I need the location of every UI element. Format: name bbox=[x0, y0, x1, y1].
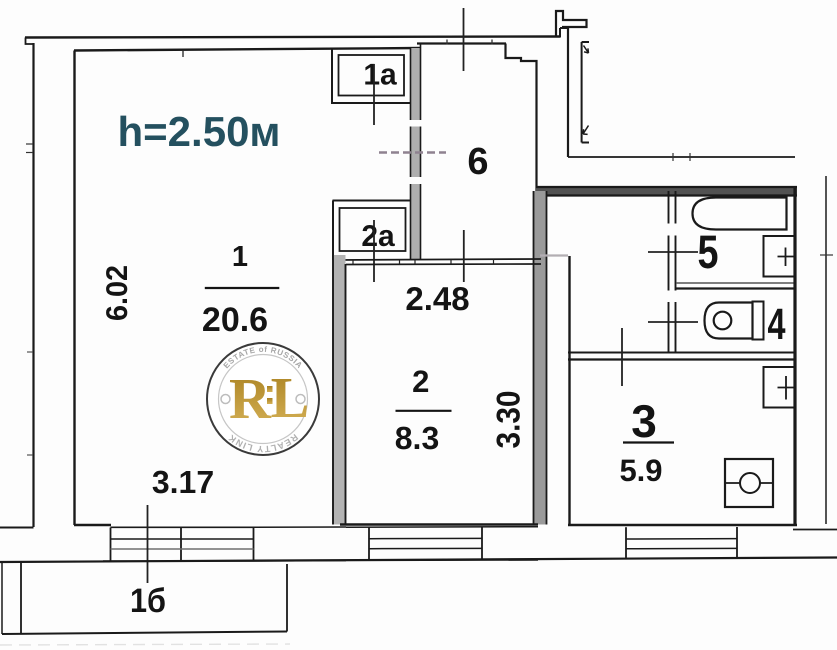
svg-text:1б: 1б bbox=[130, 582, 166, 620]
svg-text:3.17: 3.17 bbox=[152, 464, 214, 500]
svg-text:1a: 1a bbox=[363, 59, 397, 92]
svg-text:3.30: 3.30 bbox=[490, 391, 527, 449]
svg-text:R: R bbox=[229, 366, 272, 431]
svg-text:3: 3 bbox=[631, 395, 657, 447]
svg-text:2a: 2a bbox=[361, 220, 395, 253]
svg-text:2.48: 2.48 bbox=[405, 280, 469, 317]
svg-text:h=2.50м: h=2.50м bbox=[118, 108, 281, 155]
svg-text:8.3: 8.3 bbox=[395, 420, 439, 456]
svg-text:5: 5 bbox=[698, 225, 719, 278]
svg-text:2: 2 bbox=[412, 364, 429, 399]
svg-text:4: 4 bbox=[768, 300, 786, 349]
svg-text:5.9: 5.9 bbox=[619, 453, 662, 488]
svg-text:L: L bbox=[271, 365, 310, 430]
svg-text:20.6: 20.6 bbox=[202, 301, 268, 339]
svg-text:6.02: 6.02 bbox=[101, 265, 134, 321]
svg-text:1: 1 bbox=[232, 241, 248, 273]
svg-text:6: 6 bbox=[467, 141, 488, 183]
